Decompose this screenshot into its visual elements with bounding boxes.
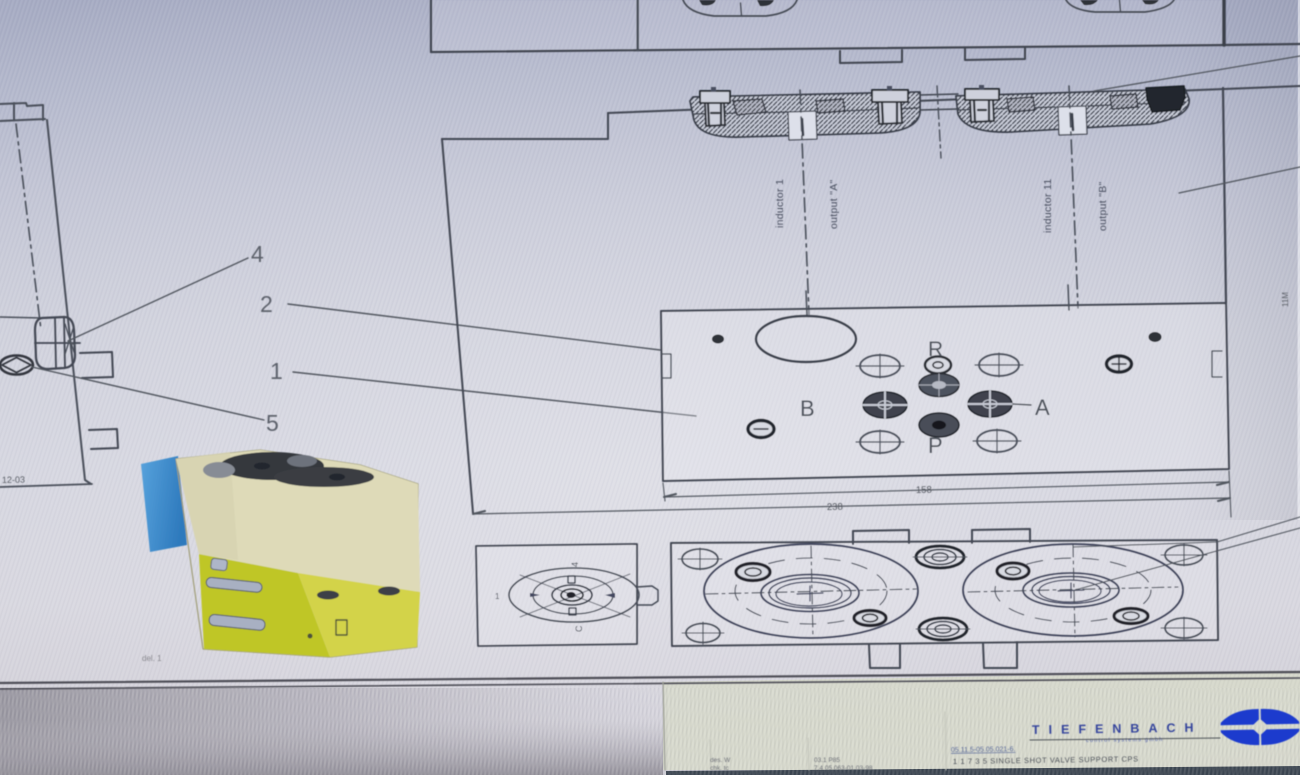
svg-text:R: R bbox=[928, 338, 943, 361]
svg-text:5: 5 bbox=[266, 410, 279, 436]
svg-text:des. W: des. W bbox=[710, 757, 731, 764]
svg-text:158: 158 bbox=[916, 485, 932, 496]
svg-text:03.1 P85: 03.1 P85 bbox=[814, 757, 840, 764]
svg-text:output "B": output "B" bbox=[1097, 181, 1109, 231]
svg-text:chk. tc: chk. tc bbox=[710, 765, 730, 772]
svg-text:1: 1 bbox=[495, 592, 500, 601]
svg-text:inductor 11: inductor 11 bbox=[1042, 179, 1054, 233]
svg-text:del. 1: del. 1 bbox=[142, 654, 162, 663]
svg-text:TIEFENBACH: TIEFENBACH bbox=[1032, 721, 1203, 737]
svg-text:12-03: 12-03 bbox=[2, 475, 25, 485]
svg-text:4: 4 bbox=[570, 562, 580, 567]
svg-text:inductor 1: inductor 1 bbox=[774, 179, 786, 228]
svg-text:C: C bbox=[574, 625, 584, 632]
svg-text:238: 238 bbox=[827, 502, 843, 513]
svg-text:4: 4 bbox=[251, 241, 264, 267]
svg-text:output "A": output "A" bbox=[828, 179, 840, 229]
svg-text:1: 1 bbox=[270, 358, 283, 384]
svg-text:7.4 05.063-01.03-98: 7.4 05.063-01.03-98 bbox=[814, 765, 873, 772]
svg-text:05.11.5-05.05.021-6.: 05.11.5-05.05.021-6. bbox=[951, 746, 1016, 754]
svg-text:P: P bbox=[928, 433, 943, 458]
svg-text:11M: 11M bbox=[1281, 292, 1290, 307]
svg-text:control systems gmbh: control systems gmbh bbox=[1086, 737, 1164, 744]
svg-text:B: B bbox=[800, 396, 815, 421]
svg-text:2: 2 bbox=[260, 291, 273, 317]
svg-text:A: A bbox=[1035, 395, 1050, 420]
